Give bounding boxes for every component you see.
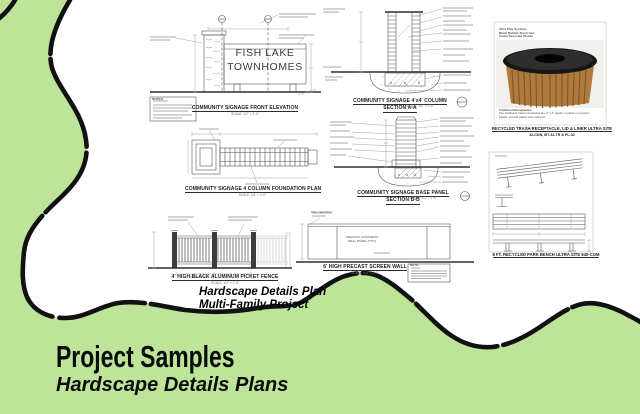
notes-label: NOTES: bbox=[152, 98, 164, 102]
column-section-drawing bbox=[323, 3, 478, 108]
wall-scale: SCALE: 1/4" = 1'-0" bbox=[300, 271, 430, 275]
footer-subtitle: Hardscape Details Plans bbox=[56, 374, 288, 397]
foundation-plan-scale: SCALE: 1/4" = 1'-0" bbox=[185, 193, 320, 197]
fence-post bbox=[172, 232, 177, 268]
sign-elevation-scale: SCALE: 1/2" = 1'-0" bbox=[180, 112, 310, 116]
park-bench-drawing bbox=[485, 148, 607, 260]
corner-stroke bbox=[0, 0, 17, 20]
blob-caption-line1: Hardscape Details Plan bbox=[199, 286, 326, 299]
screen-wall-drawing bbox=[296, 210, 478, 288]
wall-section-label: WALL SECTION bbox=[311, 211, 332, 215]
bench-caption: 8 FT. RECYCLED PARK BENCH ULTRA SITE 940… bbox=[482, 252, 610, 258]
fence-scale: SCALE: 1/2" = 1'-0" bbox=[150, 281, 300, 285]
trash-header: Ultra Play Systems Black Bubble Trash Ca… bbox=[499, 28, 569, 39]
fence-post bbox=[251, 232, 256, 268]
sign-board-text: FISH LAKE TOWNHOMES bbox=[224, 47, 306, 74]
trash-lid-opening bbox=[535, 54, 565, 63]
trash-body-text: Traditional Receptacles: The traditional… bbox=[499, 109, 599, 119]
footer-title: Project Samples bbox=[56, 339, 235, 375]
trash-caption: RECYCLED TRASH RECEPTACLE, LID & LINER U… bbox=[490, 126, 614, 139]
slide: FISH LAKE TOWNHOMES NOTES: COMMUNITY SIG… bbox=[0, 0, 640, 414]
column-section-scale: SCALE: 1/2" = 1'-0" bbox=[390, 104, 450, 108]
fence-post bbox=[212, 232, 217, 268]
blob-caption: Hardscape Details Plan Multi-Family Proj… bbox=[199, 286, 326, 312]
sign-line1: FISH LAKE bbox=[224, 47, 306, 61]
blob-caption-line2: Multi-Family Project bbox=[199, 299, 326, 312]
wall-panel-label: PRECAST CONCRETE WALL PANEL (TYP.) bbox=[340, 236, 384, 243]
base-panel-scale: SCALE: 1/2" = 1'-0" bbox=[393, 196, 453, 200]
sign-line2: TOWNHOMES bbox=[224, 61, 306, 75]
